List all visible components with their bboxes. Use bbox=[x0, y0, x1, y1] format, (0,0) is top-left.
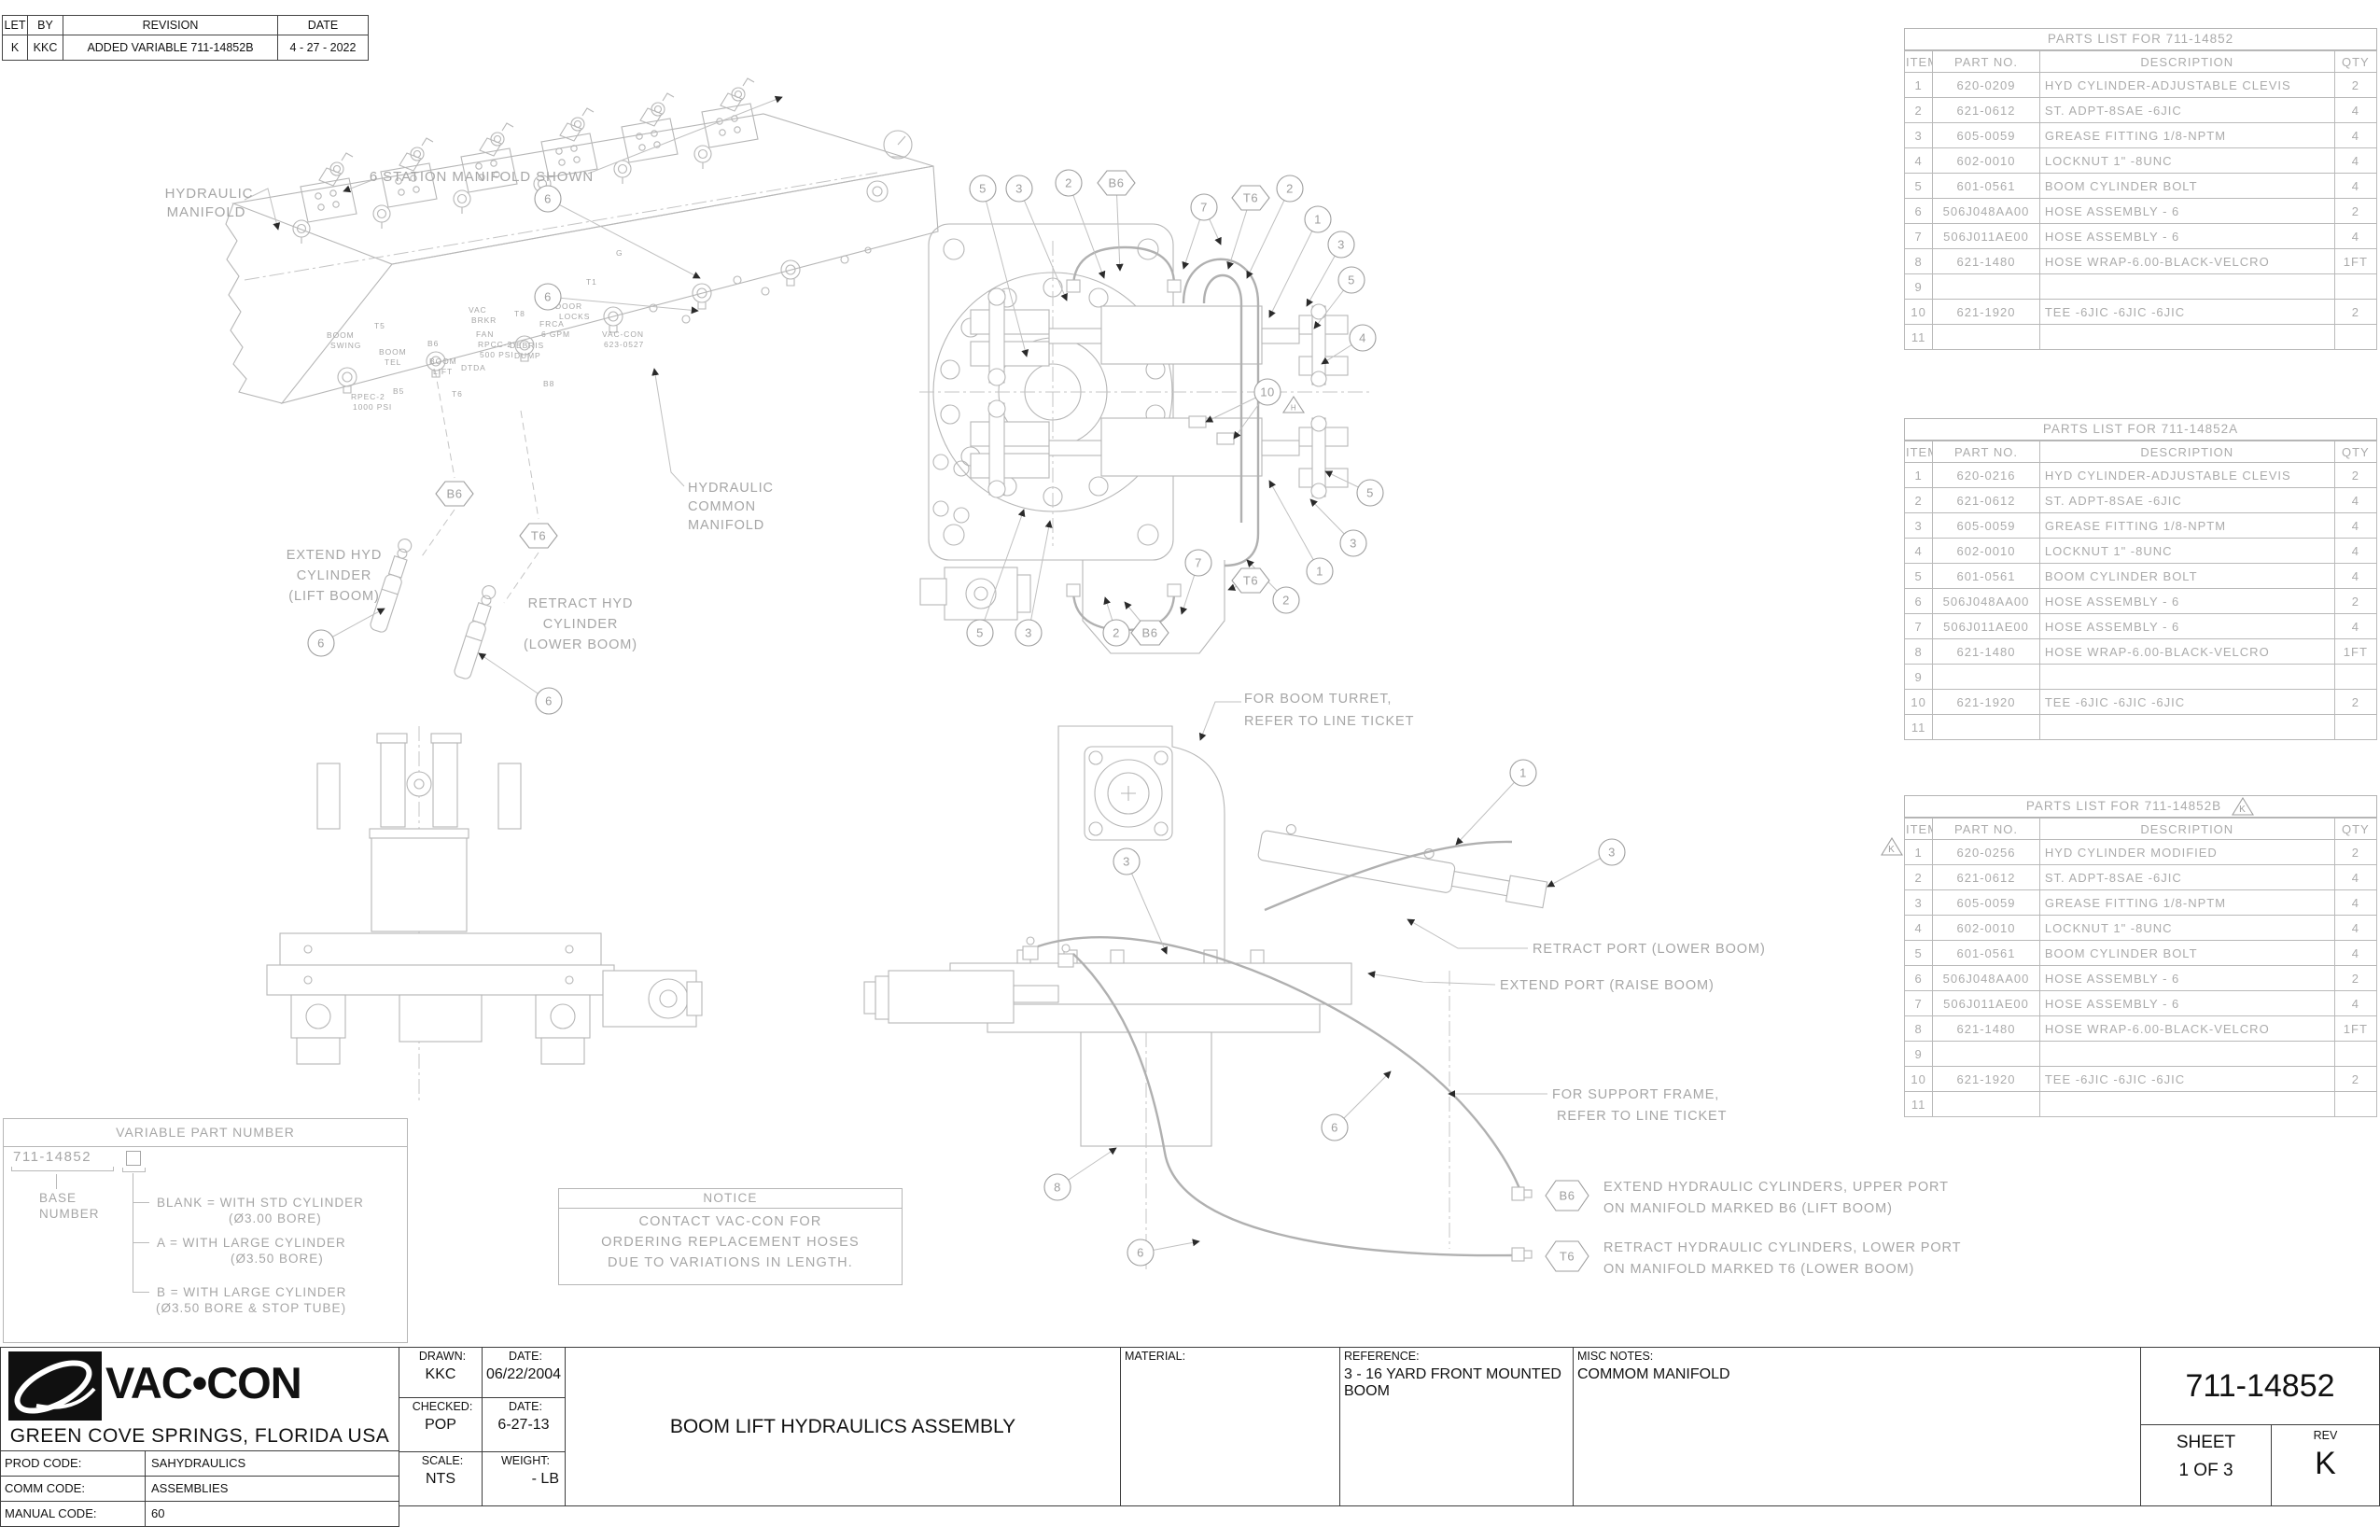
drawing-label: TEL bbox=[385, 357, 401, 367]
drawing-label: HYDRAULIC bbox=[165, 186, 254, 202]
drawing-label: 500 PSI bbox=[480, 350, 514, 359]
part-no-cell bbox=[1933, 715, 2040, 740]
qty-cell bbox=[2334, 325, 2376, 350]
item-cell: 8 bbox=[1905, 249, 1933, 274]
description-cell: HOSE WRAP-6.00-BLACK-VELCRO bbox=[2039, 1016, 2334, 1042]
description-cell bbox=[2039, 274, 2334, 300]
part-no-cell: 621-0612 bbox=[1933, 98, 2040, 123]
drawing-title-cell: BOOM LIFT HYDRAULICS ASSEMBLY bbox=[565, 1347, 1121, 1506]
qty-cell: 4 bbox=[2334, 174, 2376, 199]
qty-cell: 4 bbox=[2334, 513, 2376, 539]
callout-label: 6 bbox=[544, 192, 552, 206]
drawing-label: MANIFOLD bbox=[688, 518, 764, 533]
drawing-number: 711-14852 bbox=[2185, 1368, 2334, 1405]
qty-cell: 2 bbox=[2334, 966, 2376, 991]
drawn-value: KKC bbox=[399, 1366, 482, 1383]
drawing-label: CYLINDER bbox=[543, 617, 619, 632]
parts-table: ITEMPART NO.DESCRIPTIONQTY1620-0256HYD C… bbox=[1904, 818, 2377, 1117]
column-header: QTY bbox=[2334, 51, 2376, 73]
manifold-port-labels: BOOMSWINGT5BOOMTELB5B6BOOMLIFTT6DTDAVACB… bbox=[327, 248, 644, 412]
reference-value: 3 - 16 YARD FRONT MOUNTED BOOM bbox=[1340, 1366, 1573, 1400]
callout-label: B6 bbox=[1142, 626, 1158, 640]
table-row: 3605-0059GREASE FITTING 1/8-NPTM4 bbox=[1905, 513, 2377, 539]
qty-cell: 2 bbox=[2334, 300, 2376, 325]
qty-cell bbox=[2334, 1042, 2376, 1067]
revision-header-row: LET BY REVISION DATE bbox=[3, 16, 369, 35]
callout-label: 3 bbox=[1123, 855, 1130, 869]
description-cell: ST. ADPT-8SAE -6JIC bbox=[2039, 488, 2334, 513]
callout-label: 7 bbox=[1200, 201, 1208, 215]
callout-label: 6 bbox=[317, 637, 325, 651]
item-cell: 2 bbox=[1905, 98, 1933, 123]
description-cell bbox=[2039, 1042, 2334, 1067]
callout-label: T6 bbox=[1243, 574, 1258, 588]
part-no-cell: 621-0612 bbox=[1933, 488, 2040, 513]
table-row: 5601-0561BOOM CYLINDER BOLT4 bbox=[1905, 174, 2377, 199]
qty-cell: 2 bbox=[2334, 840, 2376, 865]
item-cell: 6 bbox=[1905, 589, 1933, 614]
notice-line-3: DUE TO VARIATIONS IN LENGTH. bbox=[559, 1253, 902, 1273]
description-cell: HOSE ASSEMBLY - 6 bbox=[2039, 614, 2334, 639]
drawing-label: BOOM bbox=[327, 330, 355, 340]
qty-cell: 1FT bbox=[2334, 249, 2376, 274]
callout-label: 7 bbox=[1195, 556, 1202, 570]
description-cell: HOSE WRAP-6.00-BLACK-VELCRO bbox=[2039, 249, 2334, 274]
parts-table: ITEMPART NO.DESCRIPTIONQTY1620-0209HYD C… bbox=[1904, 50, 2377, 350]
part-no-cell: 601-0561 bbox=[1933, 564, 2040, 589]
qty-cell bbox=[2334, 715, 2376, 740]
description-cell: HOSE ASSEMBLY - 6 bbox=[2039, 966, 2334, 991]
part-no-cell: 506J048AA00 bbox=[1933, 589, 2040, 614]
callout-label: T6 bbox=[531, 529, 546, 543]
svg-text:K: K bbox=[1888, 845, 1896, 855]
table-row: 11 bbox=[1905, 715, 2377, 740]
column-header: ITEM bbox=[1905, 51, 1933, 73]
description-cell: HYD CYLINDER-ADJUSTABLE CLEVIS bbox=[2039, 463, 2334, 488]
item-cell: 1 bbox=[1905, 463, 1933, 488]
part-no-cell: 620-0256 bbox=[1933, 840, 2040, 865]
option-blank: BLANK = WITH STD CYLINDER bbox=[157, 1196, 364, 1210]
part-no-cell: 506J011AE00 bbox=[1933, 224, 2040, 249]
drawn-date-label: DATE: bbox=[483, 1348, 565, 1363]
table-row: 1620-0256HYD CYLINDER MODIFIED2 bbox=[1905, 840, 2377, 865]
side-pedestal-view bbox=[267, 726, 702, 1101]
qty-cell: 2 bbox=[2334, 73, 2376, 98]
table-row: 7506J011AE00HOSE ASSEMBLY - 64 bbox=[1905, 614, 2377, 639]
part-no-cell: 601-0561 bbox=[1933, 941, 2040, 966]
drawing-label: 6 STATION MANIFOLD SHOWN bbox=[370, 169, 594, 185]
checked-label: CHECKED: bbox=[399, 1398, 482, 1413]
callout-label: 3 bbox=[1608, 846, 1616, 860]
item-cell: 9 bbox=[1905, 665, 1933, 690]
column-header: PART NO. bbox=[1933, 51, 2040, 73]
qty-cell: 4 bbox=[2334, 865, 2376, 890]
description-cell bbox=[2039, 715, 2334, 740]
comm-code-label: COMM CODE: bbox=[1, 1477, 145, 1495]
rev-by: KKC bbox=[28, 35, 63, 61]
logo-cell: VAC•CON GREEN COVE SPRINGS, FLORIDA USA bbox=[0, 1347, 399, 1451]
rev-col-date: DATE bbox=[278, 16, 369, 35]
table-row: 2621-0612ST. ADPT-8SAE -6JIC4 bbox=[1905, 488, 2377, 513]
reference-label: REFERENCE: bbox=[1340, 1348, 1573, 1363]
part-no-cell bbox=[1933, 1092, 2040, 1117]
part-no-cell bbox=[1933, 325, 2040, 350]
option-a-sub: (Ø3.50 BORE) bbox=[231, 1252, 324, 1266]
legend-symbols: B6T6 bbox=[1546, 1181, 1589, 1271]
qty-cell bbox=[2334, 665, 2376, 690]
item-cell: 8 bbox=[1905, 639, 1933, 665]
qty-cell bbox=[2334, 1092, 2376, 1117]
description-cell: LOCKNUT 1" -8UNC bbox=[2039, 916, 2334, 941]
description-cell: LOCKNUT 1" -8UNC bbox=[2039, 539, 2334, 564]
item-cell: 3 bbox=[1905, 123, 1933, 148]
description-cell: HOSE ASSEMBLY - 6 bbox=[2039, 224, 2334, 249]
part-no-cell: 605-0059 bbox=[1933, 513, 2040, 539]
column-header: PART NO. bbox=[1933, 441, 2040, 463]
description-cell: HOSE ASSEMBLY - 6 bbox=[2039, 991, 2334, 1016]
drawing-label: EXTEND HYDRAULIC CYLINDERS, UPPER PORT bbox=[1603, 1180, 1949, 1195]
callout-label: T6 bbox=[1243, 191, 1258, 205]
drawing-label: LIFT bbox=[433, 367, 453, 376]
qty-cell: 4 bbox=[2334, 991, 2376, 1016]
qty-cell: 4 bbox=[2334, 488, 2376, 513]
description-cell: TEE -6JIC -6JIC -6JIC bbox=[2039, 300, 2334, 325]
drawing-label: RPEC-2 bbox=[351, 392, 385, 401]
drawing-label: RETRACT PORT (LOWER BOOM) bbox=[1533, 942, 1766, 957]
manual-code-label: MANUAL CODE: bbox=[1, 1502, 145, 1520]
variant-bracket bbox=[122, 1168, 146, 1172]
item-cell: 6 bbox=[1905, 966, 1933, 991]
rev-date: 4 - 27 - 2022 bbox=[278, 35, 369, 61]
item-cell: 4 bbox=[1905, 148, 1933, 174]
description-cell: ST. ADPT-8SAE -6JIC bbox=[2039, 865, 2334, 890]
rev-col-let: LET bbox=[3, 16, 28, 35]
description-cell: HOSE ASSEMBLY - 6 bbox=[2039, 589, 2334, 614]
drawing-label: T5 bbox=[374, 321, 385, 330]
base-label-line1: BASE bbox=[39, 1191, 77, 1205]
drawing-label: (LIFT BOOM) bbox=[288, 589, 379, 604]
callout-label: 3 bbox=[1350, 537, 1357, 551]
qty-cell: 4 bbox=[2334, 98, 2376, 123]
part-no-cell: 605-0059 bbox=[1933, 890, 2040, 916]
rev-cell: REV K bbox=[2271, 1424, 2380, 1506]
vaccon-logo-icon bbox=[8, 1351, 102, 1421]
description-cell: GREASE FITTING 1/8-NPTM bbox=[2039, 890, 2334, 916]
item-cell: 6 bbox=[1905, 199, 1933, 224]
item-cell: 9 bbox=[1905, 274, 1933, 300]
manual-code-value: 60 bbox=[146, 1502, 399, 1520]
variant-box-icon bbox=[126, 1151, 141, 1166]
callout-label: 5 bbox=[1348, 273, 1355, 287]
weight-value: - LB bbox=[483, 1471, 565, 1488]
misc-notes-label: MISC NOTES: bbox=[1574, 1348, 2140, 1363]
table-row: 10621-1920TEE -6JIC -6JIC -6JIC2 bbox=[1905, 1067, 2377, 1092]
drawing-label: REFER TO LINE TICKET bbox=[1557, 1109, 1727, 1124]
table-row: 7506J011AE00HOSE ASSEMBLY - 64 bbox=[1905, 224, 2377, 249]
rev-description: ADDED VARIABLE 711-14852B bbox=[63, 35, 278, 61]
table-row: 6506J048AA00HOSE ASSEMBLY - 62 bbox=[1905, 589, 2377, 614]
drawing-label: ON MANIFOLD MARKED B6 (LIFT BOOM) bbox=[1603, 1201, 1893, 1216]
table-row: 7506J011AE00HOSE ASSEMBLY - 64 bbox=[1905, 991, 2377, 1016]
item-cell: 11 bbox=[1905, 325, 1933, 350]
table-row: 9 bbox=[1905, 274, 2377, 300]
revision-row: K KKC ADDED VARIABLE 711-14852B 4 - 27 -… bbox=[3, 35, 369, 61]
item-cell: 10 bbox=[1905, 300, 1933, 325]
rev-col-revision: REVISION bbox=[63, 16, 278, 35]
qty-cell: 4 bbox=[2334, 148, 2376, 174]
drawing-label: RETRACT HYD bbox=[528, 596, 634, 611]
lift-cylinder-icon bbox=[1257, 819, 1549, 909]
description-cell: TEE -6JIC -6JIC -6JIC bbox=[2039, 690, 2334, 715]
part-no-cell: 602-0010 bbox=[1933, 148, 2040, 174]
drawing-label: (LOWER BOOM) bbox=[524, 637, 637, 652]
rev-value: K bbox=[2272, 1446, 2379, 1482]
callout-label: 5 bbox=[976, 626, 984, 640]
table-row: 9 bbox=[1905, 665, 2377, 690]
item-cell: 2 bbox=[1905, 865, 1933, 890]
description-cell: LOCKNUT 1" -8UNC bbox=[2039, 148, 2334, 174]
part-no-cell: 621-0612 bbox=[1933, 865, 2040, 890]
item-cell: 1 bbox=[1905, 73, 1933, 98]
callout-label: 5 bbox=[979, 182, 987, 196]
part-no-cell: 621-1920 bbox=[1933, 690, 2040, 715]
part-no-cell: 621-1480 bbox=[1933, 249, 2040, 274]
item-cell: 10 bbox=[1905, 1067, 1933, 1092]
item-cell: 5 bbox=[1905, 941, 1933, 966]
item-cell: 7 bbox=[1905, 224, 1933, 249]
item-cell: 7 bbox=[1905, 991, 1933, 1016]
callout-label: H bbox=[1291, 404, 1296, 413]
drawing-number-cell: 711-14852 bbox=[2140, 1347, 2380, 1425]
drawing-label: FOR BOOM TURRET, bbox=[1244, 692, 1392, 707]
column-header: DESCRIPTION bbox=[2039, 51, 2334, 73]
option-b: B = WITH LARGE CYLINDER bbox=[157, 1285, 346, 1299]
callout-label: 5 bbox=[1366, 486, 1374, 500]
parts-list-711-14852B: PARTS LIST FOR 711-14852BKITEMPART NO.DE… bbox=[1904, 795, 2377, 1117]
part-no-cell: 506J011AE00 bbox=[1933, 614, 2040, 639]
checked-value: POP bbox=[399, 1417, 482, 1434]
qty-cell: 4 bbox=[2334, 890, 2376, 916]
qty-cell: 4 bbox=[2334, 224, 2376, 249]
qty-cell: 4 bbox=[2334, 916, 2376, 941]
parts-list-title: PARTS LIST FOR 711-14852A bbox=[1904, 418, 2377, 441]
retract-cylinder-icon bbox=[453, 583, 498, 680]
drawing-label: FAN bbox=[476, 329, 494, 339]
drawing-label: HYDRAULIC bbox=[688, 481, 774, 496]
part-no-cell: 621-1480 bbox=[1933, 639, 2040, 665]
callout-label: 2 bbox=[1282, 594, 1290, 608]
table-row: 8621-1480HOSE WRAP-6.00-BLACK-VELCRO1FT bbox=[1905, 639, 2377, 665]
drawn-date-value: 06/22/2004 bbox=[483, 1366, 565, 1383]
callout-label: 8 bbox=[1054, 1181, 1061, 1195]
drawing-label: BOOM bbox=[379, 347, 407, 357]
material-label: MATERIAL: bbox=[1121, 1348, 1339, 1363]
drawing-label: B8 bbox=[543, 379, 554, 388]
part-no-cell bbox=[1933, 665, 2040, 690]
part-no-cell: 601-0561 bbox=[1933, 174, 2040, 199]
drawing-label: RETRACT HYDRAULIC CYLINDERS, LOWER PORT bbox=[1603, 1240, 1961, 1255]
svg-text:K: K bbox=[2239, 805, 2247, 815]
qty-cell: 2 bbox=[2334, 463, 2376, 488]
column-header: ITEM bbox=[1905, 441, 1933, 463]
part-no-cell: 621-1920 bbox=[1933, 1067, 2040, 1092]
sheet-cell: SHEET 1 OF 3 bbox=[2140, 1424, 2272, 1506]
table-row: 2621-0612ST. ADPT-8SAE -6JIC4 bbox=[1905, 865, 2377, 890]
callout-label: 10 bbox=[1260, 385, 1274, 399]
weight-label: WEIGHT: bbox=[483, 1452, 565, 1467]
part-no-cell: 506J048AA00 bbox=[1933, 966, 2040, 991]
checked-date-label: DATE: bbox=[483, 1398, 565, 1413]
item-cell: 3 bbox=[1905, 890, 1933, 916]
drawing-title: BOOM LIFT HYDRAULICS ASSEMBLY bbox=[670, 1416, 1015, 1438]
part-no-cell bbox=[1933, 274, 2040, 300]
scale-label: SCALE: bbox=[399, 1452, 482, 1467]
item-cell: 10 bbox=[1905, 690, 1933, 715]
qty-cell: 1FT bbox=[2334, 639, 2376, 665]
option-b-sub: (Ø3.50 BORE & STOP TUBE) bbox=[156, 1301, 346, 1315]
description-cell: BOOM CYLINDER BOLT bbox=[2039, 941, 2334, 966]
description-cell: ST. ADPT-8SAE -6JIC bbox=[2039, 98, 2334, 123]
item-cell: 11 bbox=[1905, 715, 1933, 740]
notice-line-2: ORDERING REPLACEMENT HOSES bbox=[559, 1232, 902, 1253]
table-row: 4602-0010LOCKNUT 1" -8UNC4 bbox=[1905, 539, 2377, 564]
title-block: VAC•CON GREEN COVE SPRINGS, FLORIDA USA … bbox=[0, 1347, 2380, 1533]
item-cell: 1 bbox=[1905, 840, 1933, 865]
callout-label: B6 bbox=[1109, 176, 1125, 190]
parts-header-row: ITEMPART NO.DESCRIPTIONQTY bbox=[1905, 441, 2377, 463]
callout-label: 3 bbox=[1025, 626, 1032, 640]
base-label-line2: NUMBER bbox=[39, 1207, 100, 1221]
rev-let: K bbox=[3, 35, 28, 61]
drawing-label: T6 bbox=[452, 389, 463, 399]
parts-header-row: ITEMPART NO.DESCRIPTIONQTY bbox=[1905, 51, 2377, 73]
item-cell: 8 bbox=[1905, 1016, 1933, 1042]
part-no-cell: 620-0209 bbox=[1933, 73, 2040, 98]
checked-date-value: 6-27-13 bbox=[483, 1417, 565, 1434]
callout-label: 6 bbox=[1331, 1121, 1338, 1135]
column-header: PART NO. bbox=[1933, 819, 2040, 840]
base-bracket bbox=[11, 1167, 114, 1171]
column-header: QTY bbox=[2334, 819, 2376, 840]
table-row: 11 bbox=[1905, 1092, 2377, 1117]
callout-label: 1 bbox=[1314, 213, 1322, 227]
qty-cell: 1FT bbox=[2334, 1016, 2376, 1042]
item-cell: 11 bbox=[1905, 1092, 1933, 1117]
drawing-label: ON MANIFOLD MARKED T6 (LOWER BOOM) bbox=[1603, 1262, 1914, 1277]
table-row: 5601-0561BOOM CYLINDER BOLT4 bbox=[1905, 941, 2377, 966]
description-cell bbox=[2039, 325, 2334, 350]
company-name: VAC•CON bbox=[105, 1357, 301, 1408]
item-cell: 4 bbox=[1905, 539, 1933, 564]
qty-cell: 4 bbox=[2334, 539, 2376, 564]
base-part-number: 711-14852 bbox=[13, 1149, 91, 1165]
notice-title: NOTICE bbox=[559, 1189, 902, 1209]
drawing-label: VAC bbox=[469, 305, 487, 315]
table-row: 2621-0612ST. ADPT-8SAE -6JIC4 bbox=[1905, 98, 2377, 123]
part-no-cell: 621-1920 bbox=[1933, 300, 2040, 325]
sheet-value: 1 OF 3 bbox=[2141, 1461, 2271, 1481]
description-cell bbox=[2039, 665, 2334, 690]
table-row: 4602-0010LOCKNUT 1" -8UNC4 bbox=[1905, 916, 2377, 941]
callout-label: 1 bbox=[1519, 766, 1527, 780]
table-row: 11 bbox=[1905, 325, 2377, 350]
comm-code-value: ASSEMBLIES bbox=[146, 1477, 399, 1495]
parts-header-row: ITEMPART NO.DESCRIPTIONQTY bbox=[1905, 819, 2377, 840]
table-row: 1620-0209HYD CYLINDER-ADJUSTABLE CLEVIS2 bbox=[1905, 73, 2377, 98]
item-cell: 2 bbox=[1905, 488, 1933, 513]
drawing-label: T1 bbox=[586, 277, 597, 287]
drawing-label: EXTEND PORT (RAISE BOOM) bbox=[1500, 978, 1715, 993]
parts-list-711-14852A: PARTS LIST FOR 711-14852AITEMPART NO.DES… bbox=[1904, 418, 2377, 740]
parts-table: ITEMPART NO.DESCRIPTIONQTY1620-0216HYD C… bbox=[1904, 441, 2377, 740]
table-row: 10621-1920TEE -6JIC -6JIC -6JIC2 bbox=[1905, 300, 2377, 325]
company-address: GREEN COVE SPRINGS, FLORIDA USA bbox=[1, 1425, 399, 1448]
rev-col-by: BY bbox=[28, 16, 63, 35]
description-cell: HOSE WRAP-6.00-BLACK-VELCRO bbox=[2039, 639, 2334, 665]
callout-label: 1 bbox=[1316, 565, 1323, 579]
table-row: 3605-0059GREASE FITTING 1/8-NPTM4 bbox=[1905, 890, 2377, 916]
drawing-label: DTDA bbox=[461, 363, 486, 372]
item-cell: 7 bbox=[1905, 614, 1933, 639]
description-cell: BOOM CYLINDER BOLT bbox=[2039, 564, 2334, 589]
drawing-label: T8 bbox=[514, 309, 525, 318]
description-cell: TEE -6JIC -6JIC -6JIC bbox=[2039, 1067, 2334, 1092]
callout-label: B6 bbox=[447, 487, 463, 501]
callout-label: 6 bbox=[545, 694, 553, 708]
parts-list-711-14852: PARTS LIST FOR 711-14852ITEMPART NO.DESC… bbox=[1904, 28, 2377, 350]
drawing-label: G bbox=[616, 248, 623, 258]
part-no-cell: 605-0059 bbox=[1933, 123, 2040, 148]
part-no-cell: 621-1480 bbox=[1933, 1016, 2040, 1042]
table-row: 6506J048AA00HOSE ASSEMBLY - 62 bbox=[1905, 966, 2377, 991]
column-header: QTY bbox=[2334, 441, 2376, 463]
drawing-label: VAC-CON bbox=[602, 329, 644, 339]
callout-label: 6 bbox=[1137, 1246, 1144, 1260]
prod-code-label: PROD CODE: bbox=[1, 1451, 145, 1470]
drawing-label: 623-0527 bbox=[604, 340, 644, 349]
callout-label: 2 bbox=[1065, 176, 1072, 190]
drawing-label: COMMON bbox=[688, 499, 756, 514]
item-cell: 4 bbox=[1905, 916, 1933, 941]
part-no-cell: 506J011AE00 bbox=[1933, 991, 2040, 1016]
rev-label: REV bbox=[2272, 1425, 2379, 1442]
table-row: 8621-1480HOSE WRAP-6.00-BLACK-VELCRO1FT bbox=[1905, 1016, 2377, 1042]
drawing-label: FOR SUPPORT FRAME, bbox=[1552, 1087, 1719, 1102]
option-blank-sub: (Ø3.00 BORE) bbox=[229, 1211, 322, 1225]
revision-table: LET BY REVISION DATE K KKC ADDED VARIABL… bbox=[2, 15, 369, 61]
table-row: 4602-0010LOCKNUT 1" -8UNC4 bbox=[1905, 148, 2377, 174]
qty-cell: 2 bbox=[2334, 690, 2376, 715]
column-header: ITEM bbox=[1905, 819, 1933, 840]
misc-notes-value: COMMOM MANIFOLD bbox=[1574, 1366, 2140, 1383]
part-no-cell: 620-0216 bbox=[1933, 463, 2040, 488]
sheet-label: SHEET bbox=[2141, 1433, 2271, 1453]
drawing-label: SWING bbox=[330, 341, 361, 350]
drawing-label: RPCC-2 bbox=[478, 340, 512, 349]
drawing-label: REFER TO LINE TICKET bbox=[1244, 714, 1414, 729]
drawing-label: B6 bbox=[427, 339, 439, 348]
drawing-label: DUMP bbox=[514, 351, 541, 360]
parts-list-title: PARTS LIST FOR 711-14852 bbox=[1904, 28, 2377, 50]
item-cell: 5 bbox=[1905, 174, 1933, 199]
description-cell: HYD CYLINDER MODIFIED bbox=[2039, 840, 2334, 865]
notice-box: NOTICE CONTACT VAC-CON FOR ORDERING REPL… bbox=[558, 1188, 903, 1285]
description-cell: BOOM CYLINDER BOLT bbox=[2039, 174, 2334, 199]
qty-cell: 2 bbox=[2334, 199, 2376, 224]
table-row: 3605-0059GREASE FITTING 1/8-NPTM4 bbox=[1905, 123, 2377, 148]
callout-label: 2 bbox=[1286, 182, 1294, 196]
drawing-label: 1000 PSI bbox=[353, 402, 392, 412]
